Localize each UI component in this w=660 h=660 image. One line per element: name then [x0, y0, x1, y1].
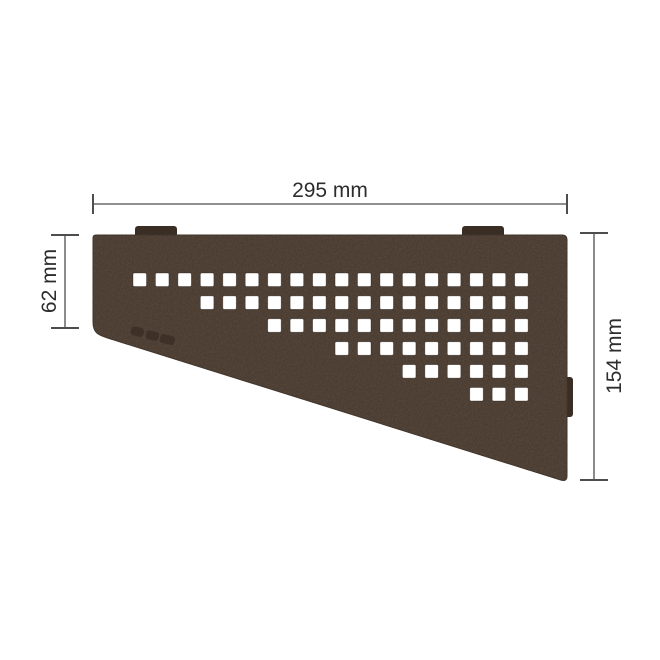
square-hole [470, 365, 484, 379]
square-hole [380, 273, 394, 287]
square-hole [335, 296, 349, 310]
square-hole [515, 319, 529, 333]
square-hole [515, 273, 529, 287]
square-hole [268, 319, 282, 333]
square-hole [268, 273, 282, 287]
square-hole [358, 296, 372, 310]
square-hole [380, 296, 394, 310]
square-hole [402, 365, 416, 379]
square-hole [492, 342, 506, 356]
square-hole [447, 296, 461, 310]
square-hole [245, 296, 259, 310]
square-hole [290, 319, 304, 333]
square-hole [492, 319, 506, 333]
square-hole [425, 273, 439, 287]
shelf-diagram-canvas: 295 mm 62 mm 154 mm [0, 0, 660, 660]
square-hole [313, 319, 327, 333]
square-hole [402, 342, 416, 356]
square-hole [492, 296, 506, 310]
square-hole [515, 342, 529, 356]
square-hole [290, 273, 304, 287]
square-hole [358, 273, 372, 287]
square-hole [402, 319, 416, 333]
square-hole [515, 365, 529, 379]
square-hole [447, 342, 461, 356]
square-hole [515, 388, 529, 402]
square-hole [155, 273, 169, 287]
square-hole [492, 273, 506, 287]
square-hole [470, 342, 484, 356]
square-hole [470, 319, 484, 333]
square-hole [313, 273, 327, 287]
square-hole [358, 342, 372, 356]
square-hole [470, 273, 484, 287]
square-hole [492, 365, 506, 379]
square-hole [223, 296, 237, 310]
square-hole [133, 273, 147, 287]
square-hole [425, 342, 439, 356]
square-hole [447, 319, 461, 333]
square-hole [290, 296, 304, 310]
square-hole [313, 296, 327, 310]
square-hole [447, 273, 461, 287]
square-hole [492, 388, 506, 402]
square-hole [380, 342, 394, 356]
square-hole [425, 319, 439, 333]
square-hole [335, 342, 349, 356]
square-hole [380, 319, 394, 333]
square-hole [245, 273, 259, 287]
square-hole [268, 296, 282, 310]
square-hole [223, 273, 237, 287]
square-hole [447, 365, 461, 379]
dimension-label-top-width: 295 mm [292, 179, 368, 202]
square-hole [358, 319, 372, 333]
square-hole [425, 296, 439, 310]
square-hole [402, 296, 416, 310]
shelf-texture [93, 235, 567, 481]
dimension-label-right-height: 154 mm [603, 318, 626, 394]
square-hole [470, 296, 484, 310]
square-hole [425, 365, 439, 379]
square-hole [470, 388, 484, 402]
square-hole [335, 319, 349, 333]
dimension-label-left-height: 62 mm [38, 249, 61, 313]
square-hole [402, 273, 416, 287]
square-hole [200, 296, 214, 310]
square-hole [515, 296, 529, 310]
square-hole [178, 273, 192, 287]
square-hole [200, 273, 214, 287]
product-diagram: 295 mm 62 mm 154 mm [0, 0, 660, 660]
square-hole [335, 273, 349, 287]
